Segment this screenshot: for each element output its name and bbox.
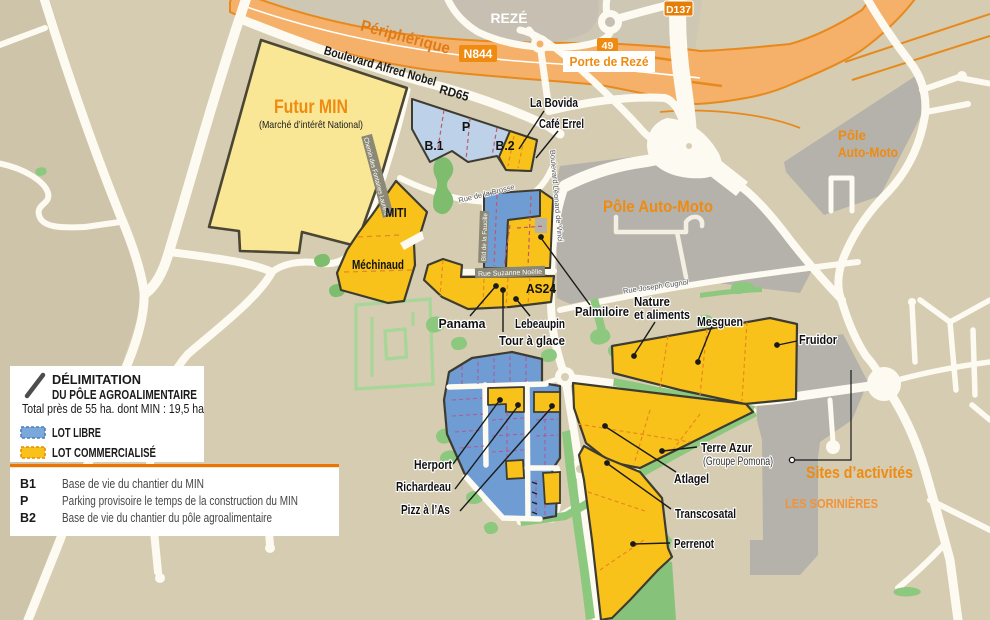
svg-text:B.2: B.2 [496,139,515,153]
svg-text:B2: B2 [20,511,36,525]
svg-text:Palmiloire: Palmiloire [575,305,629,319]
svg-text:Panama: Panama [439,317,487,331]
svg-text:Pôle: Pôle [838,127,866,143]
svg-text:Base de vie du chantier du pôl: Base de vie du chantier du pôle agroalim… [62,511,272,525]
svg-text:(Groupe Pomona): (Groupe Pomona) [703,454,773,468]
svg-text:Richardeau: Richardeau [396,480,451,494]
svg-text:Sites d’activités: Sites d’activités [806,463,913,482]
svg-text:Terre Azur: Terre Azur [701,441,752,455]
svg-text:DU PÔLE AGROALIMENTAIRE: DU PÔLE AGROALIMENTAIRE [52,387,197,402]
svg-text:N844: N844 [464,47,493,61]
svg-text:49: 49 [602,40,614,52]
svg-text:La Bovida: La Bovida [530,96,579,110]
svg-text:B1: B1 [20,477,36,491]
svg-text:LOT COMMERCIALISÉ: LOT COMMERCIALISÉ [52,445,156,460]
svg-text:et aliments: et aliments [634,308,690,322]
svg-text:MITI: MITI [386,206,407,220]
svg-text:DÉLIMITATION: DÉLIMITATION [52,372,141,387]
svg-text:Futur MIN: Futur MIN [274,97,348,118]
svg-text:Tour à glace: Tour à glace [499,334,565,348]
svg-text:Nature: Nature [634,295,670,309]
svg-text:Porte de Rezé: Porte de Rezé [570,54,649,69]
svg-text:Perrenot: Perrenot [674,537,715,551]
svg-text:Pôle Auto-Moto: Pôle Auto-Moto [603,197,713,216]
svg-text:Café Errel: Café Errel [539,117,584,131]
svg-text:D137: D137 [666,4,691,16]
svg-text:Atlagel: Atlagel [674,472,709,486]
svg-text:P: P [462,120,470,134]
svg-text:P: P [20,494,28,508]
svg-text:AS24: AS24 [526,282,556,296]
svg-text:Transcosatal: Transcosatal [675,507,736,521]
svg-text:Pizz à l’As: Pizz à l’As [401,503,450,517]
svg-text:(Marché d’intérêt National): (Marché d’intérêt National) [259,119,363,131]
svg-text:B.1: B.1 [425,139,444,153]
svg-text:Parking provisoire le temps de: Parking provisoire le temps de la constr… [62,494,298,508]
svg-text:LES SORINIÈRES: LES SORINIÈRES [785,496,878,511]
svg-text:Base de vie du chantier du MIN: Base de vie du chantier du MIN [62,477,204,491]
svg-text:Herport: Herport [414,458,453,472]
svg-text:Lebeaupin: Lebeaupin [515,317,565,331]
svg-text:Total près de 55 ha. dont MIN: Total près de 55 ha. dont MIN : 19,5 ha [22,402,204,416]
svg-text:Mesguen: Mesguen [697,315,743,329]
svg-text:Fruidor: Fruidor [799,333,837,347]
svg-text:Méchinaud: Méchinaud [352,258,404,272]
svg-text:LOT LIBRE: LOT LIBRE [52,426,101,440]
svg-text:Auto-Moto: Auto-Moto [838,144,898,160]
svg-text:REZÉ: REZÉ [491,10,528,26]
